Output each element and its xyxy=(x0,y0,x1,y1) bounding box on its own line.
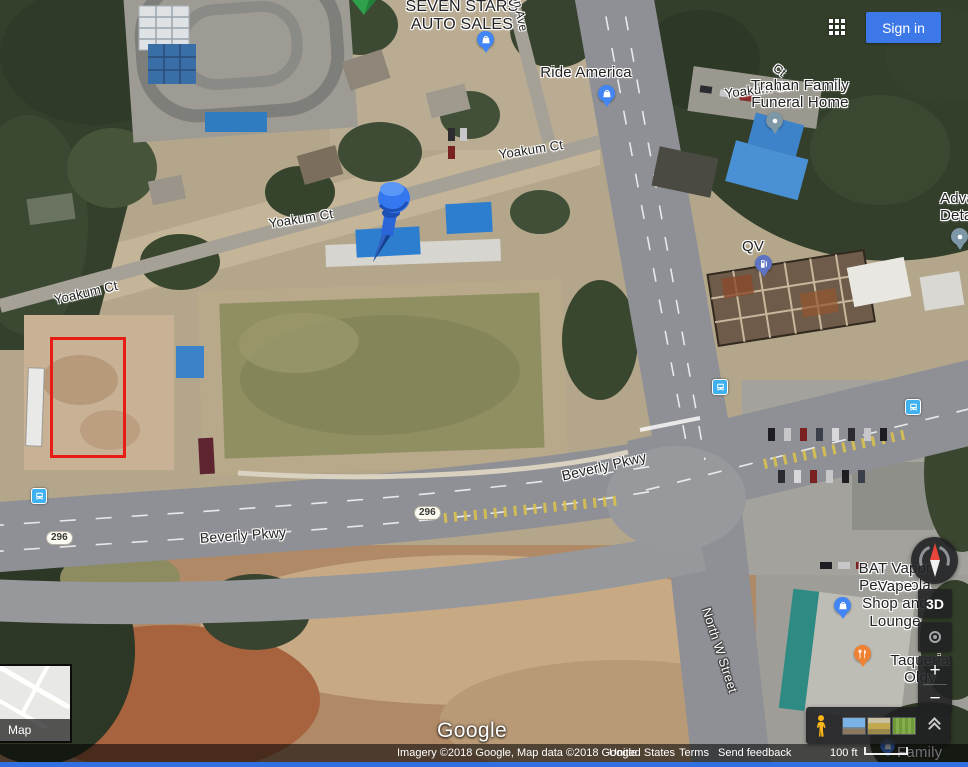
streetview-bar xyxy=(806,707,951,744)
terms-link[interactable]: Terms xyxy=(679,747,709,759)
country-label: United States xyxy=(609,747,675,759)
streetview-thumbnail[interactable] xyxy=(842,717,866,735)
imagery-attribution: Imagery ©2018 Google, Map data ©2018 Goo… xyxy=(397,747,637,759)
pin-qv-gas[interactable] xyxy=(755,255,772,277)
send-feedback-link[interactable]: Send feedback xyxy=(718,747,791,759)
pin-funeral-home[interactable] xyxy=(766,112,783,134)
zoom-divider xyxy=(923,684,947,685)
google-logo: Google xyxy=(437,719,507,743)
imagery-thumbnail-1[interactable] xyxy=(867,717,891,735)
map-canvas[interactable]: Sign in 3D + − xyxy=(0,0,968,767)
inset-label-bar: Map xyxy=(0,719,70,741)
route-shield-296: 296 xyxy=(414,506,441,520)
inset-map-label: Map xyxy=(8,723,31,737)
pegman-icon[interactable] xyxy=(806,714,836,738)
sign-in-button[interactable]: Sign in xyxy=(866,12,941,43)
pin-seven-stars[interactable] xyxy=(477,31,494,53)
marker-green[interactable] xyxy=(351,0,377,16)
bottom-blue-strip xyxy=(0,762,968,767)
compass-needle-south-icon xyxy=(930,560,940,577)
scale-label: 100 ft xyxy=(830,747,858,759)
bus-stop-3[interactable] xyxy=(905,399,921,415)
attribution-bar: Imagery ©2018 Google, Map data ©2018 Goo… xyxy=(0,744,968,762)
pin-ride-america[interactable] xyxy=(598,85,615,107)
apps-grid-icon[interactable] xyxy=(829,19,845,35)
my-location-button[interactable] xyxy=(918,622,952,652)
pin-bat-vapor[interactable] xyxy=(834,597,851,619)
compass-control[interactable] xyxy=(911,537,958,584)
collapse-chevron-icon[interactable] xyxy=(917,719,951,733)
bus-stop-2[interactable] xyxy=(712,379,728,395)
map-mode-inset[interactable]: Map xyxy=(0,664,72,743)
pin-map-pushpin[interactable] xyxy=(367,176,413,262)
pin-advance-detailing[interactable] xyxy=(951,228,968,250)
route-shield-296: 296 xyxy=(46,531,73,545)
inset-road xyxy=(20,664,52,715)
scale-bar xyxy=(864,747,908,755)
annotation-rectangle xyxy=(50,337,126,458)
pin-taqueria[interactable] xyxy=(854,645,871,667)
tilt-3d-button[interactable]: 3D xyxy=(918,589,952,618)
compass-needle-north-icon xyxy=(930,543,940,560)
zoom-in-button[interactable]: + xyxy=(918,657,952,685)
my-location-icon xyxy=(929,631,941,643)
bus-stop-1[interactable] xyxy=(31,488,47,504)
satellite-imagery xyxy=(0,0,968,767)
imagery-thumbnail-2[interactable] xyxy=(892,717,916,735)
